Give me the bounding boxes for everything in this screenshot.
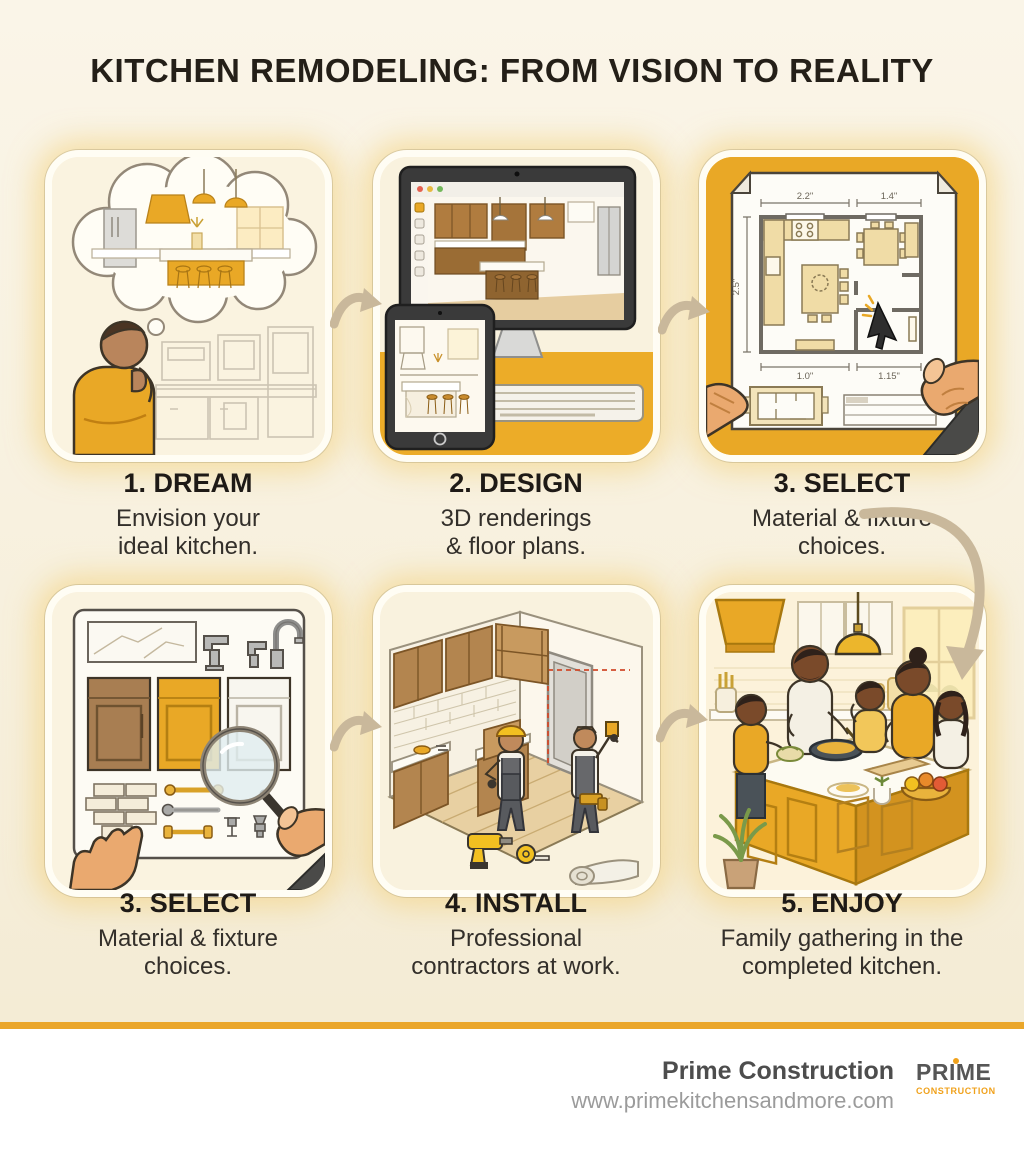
step-line: choices.	[28, 953, 348, 981]
mini-floorplan	[744, 387, 828, 425]
step-line: Material & fixture	[28, 925, 348, 953]
marble-swatch[interactable]	[88, 622, 196, 662]
tool-icon[interactable]	[415, 251, 424, 260]
dim-label: 1.0"	[797, 371, 814, 382]
range-hood	[716, 600, 784, 644]
fruit-bowl	[902, 773, 950, 800]
step-heading: 5. ENJOY	[672, 888, 1012, 919]
logo-wordmark: PRIME	[916, 1059, 996, 1086]
step-heading: 4. INSTALL	[356, 888, 676, 919]
plan-schedule-table	[844, 395, 936, 425]
logo-text-construction: CONSTRUCTION	[916, 1086, 996, 1096]
caption-install: 4. INSTALL Professional contractors at w…	[356, 888, 676, 981]
step-line: ideal kitchen.	[28, 533, 348, 561]
design-illustration	[380, 157, 653, 455]
page-title: KITCHEN REMODELING: FROM VISION TO REALI…	[0, 52, 1024, 90]
step-heading: 1. DREAM	[28, 468, 348, 499]
infographic-page: KITCHEN REMODELING: FROM VISION TO REALI…	[0, 0, 1024, 1154]
step-heading: 3. SELECT	[682, 468, 1002, 499]
caption-enjoy: 5. ENJOY Family gathering in the complet…	[672, 888, 1012, 981]
arrow-row1-to-row2	[850, 500, 1024, 690]
dim-label: 1.15"	[878, 371, 900, 382]
footer-text: Prime Construction www.primekitchensandm…	[571, 1057, 894, 1114]
minimize-icon[interactable]	[427, 186, 433, 192]
tool-icon[interactable]	[415, 235, 424, 244]
dim-label: 1.4"	[881, 191, 898, 202]
toddler-figure	[851, 682, 886, 752]
panel-select-plan: 2.2" 1.4" 2.5" 1.0" 1.15"	[699, 150, 986, 462]
arrow-install-to-enjoy	[656, 690, 708, 750]
materials-illustration	[52, 592, 325, 890]
dim-label: 2.2"	[797, 191, 814, 202]
girl-figure	[934, 691, 968, 768]
screen-kitchen-render	[428, 197, 624, 320]
step-line: contractors at work.	[356, 953, 676, 981]
plate	[828, 783, 868, 797]
tool-icon[interactable]	[415, 203, 424, 212]
caption-select-2: 3. SELECT Material & fixture choices.	[28, 888, 348, 981]
step-line: & floor plans.	[356, 533, 676, 561]
dream-illustration	[52, 157, 325, 455]
tool-icon[interactable]	[415, 267, 424, 276]
panel-design	[373, 150, 660, 462]
company-name: Prime Construction	[571, 1057, 894, 1086]
arrow-dream-to-design	[330, 272, 382, 332]
panel-dream	[45, 150, 332, 462]
tablet	[386, 305, 494, 449]
caption-design: 2. DESIGN 3D renderings & floor plans.	[356, 468, 676, 561]
panel-select-materials	[45, 585, 332, 897]
step-line: Professional	[356, 925, 676, 953]
floorplan-illustration: 2.2" 1.4" 2.5" 1.0" 1.15"	[706, 157, 979, 455]
cabinet-sample-wood[interactable]	[88, 678, 150, 770]
step-line: Envision your	[28, 505, 348, 533]
prime-construction-logo: PRIME CONSTRUCTION	[916, 1059, 996, 1096]
dim-label: 2.5"	[731, 279, 742, 296]
arrow-select-to-install	[330, 695, 382, 755]
arrow-design-to-select	[658, 282, 710, 342]
step-heading: 2. DESIGN	[356, 468, 676, 499]
tool-icon[interactable]	[415, 219, 424, 228]
step-line: completed kitchen.	[672, 953, 1012, 981]
close-icon[interactable]	[417, 186, 423, 192]
install-illustration	[380, 592, 653, 890]
logo-dot-icon	[953, 1058, 959, 1064]
step-line: Family gathering in the	[672, 925, 1012, 953]
panel-install	[373, 585, 660, 897]
step-line: 3D renderings	[356, 505, 676, 533]
website-url[interactable]: www.primekitchensandmore.com	[571, 1088, 894, 1114]
utensil-crock	[716, 672, 736, 712]
gold-divider	[0, 1022, 1024, 1029]
caption-dream: 1. DREAM Envision your ideal kitchen.	[28, 468, 348, 561]
step-heading: 3. SELECT	[28, 888, 348, 919]
maximize-icon[interactable]	[437, 186, 443, 192]
footer: Prime Construction www.primekitchensandm…	[0, 1029, 1024, 1154]
